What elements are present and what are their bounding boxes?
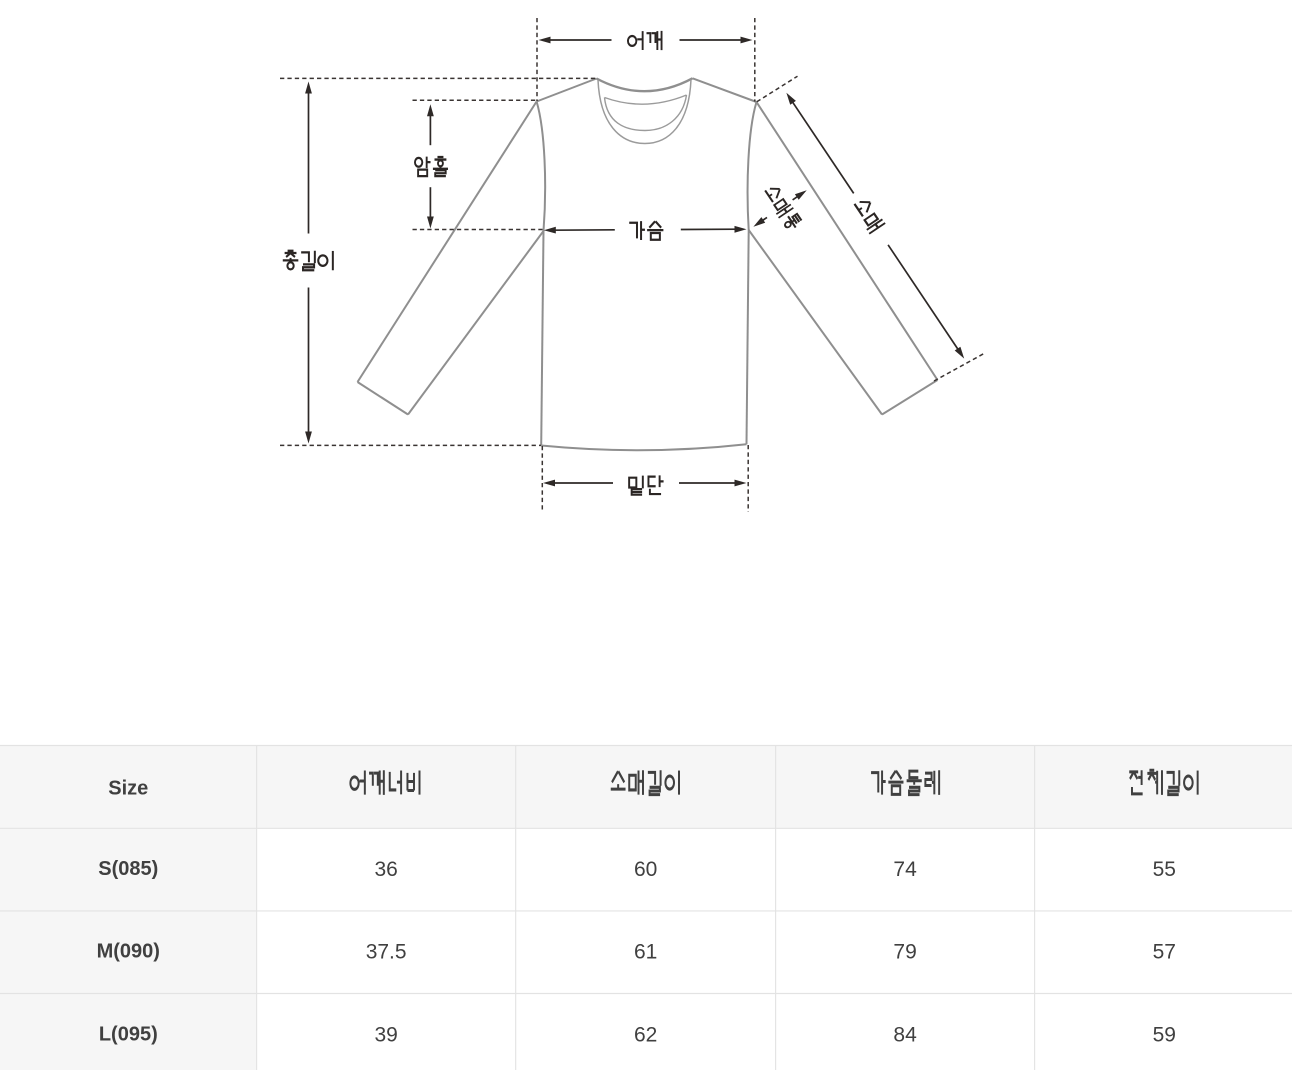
svg-text:84: 84 <box>893 1023 917 1046</box>
svg-text:60: 60 <box>634 858 657 881</box>
svg-text:61: 61 <box>634 941 657 964</box>
svg-text:36: 36 <box>374 858 397 881</box>
svg-text:55: 55 <box>1153 858 1176 881</box>
svg-text:37.5: 37.5 <box>366 941 407 964</box>
svg-text:Size: Size <box>108 777 148 799</box>
svg-text:62: 62 <box>634 1023 657 1046</box>
svg-text:74: 74 <box>893 858 917 881</box>
svg-text:59: 59 <box>1153 1023 1176 1046</box>
svg-text:M(090): M(090) <box>97 941 160 963</box>
svg-text:39: 39 <box>374 1023 397 1046</box>
svg-text:L(095): L(095) <box>99 1023 158 1045</box>
svg-text:S(085): S(085) <box>98 858 158 880</box>
svg-text:79: 79 <box>893 941 916 964</box>
svg-text:57: 57 <box>1153 941 1176 964</box>
